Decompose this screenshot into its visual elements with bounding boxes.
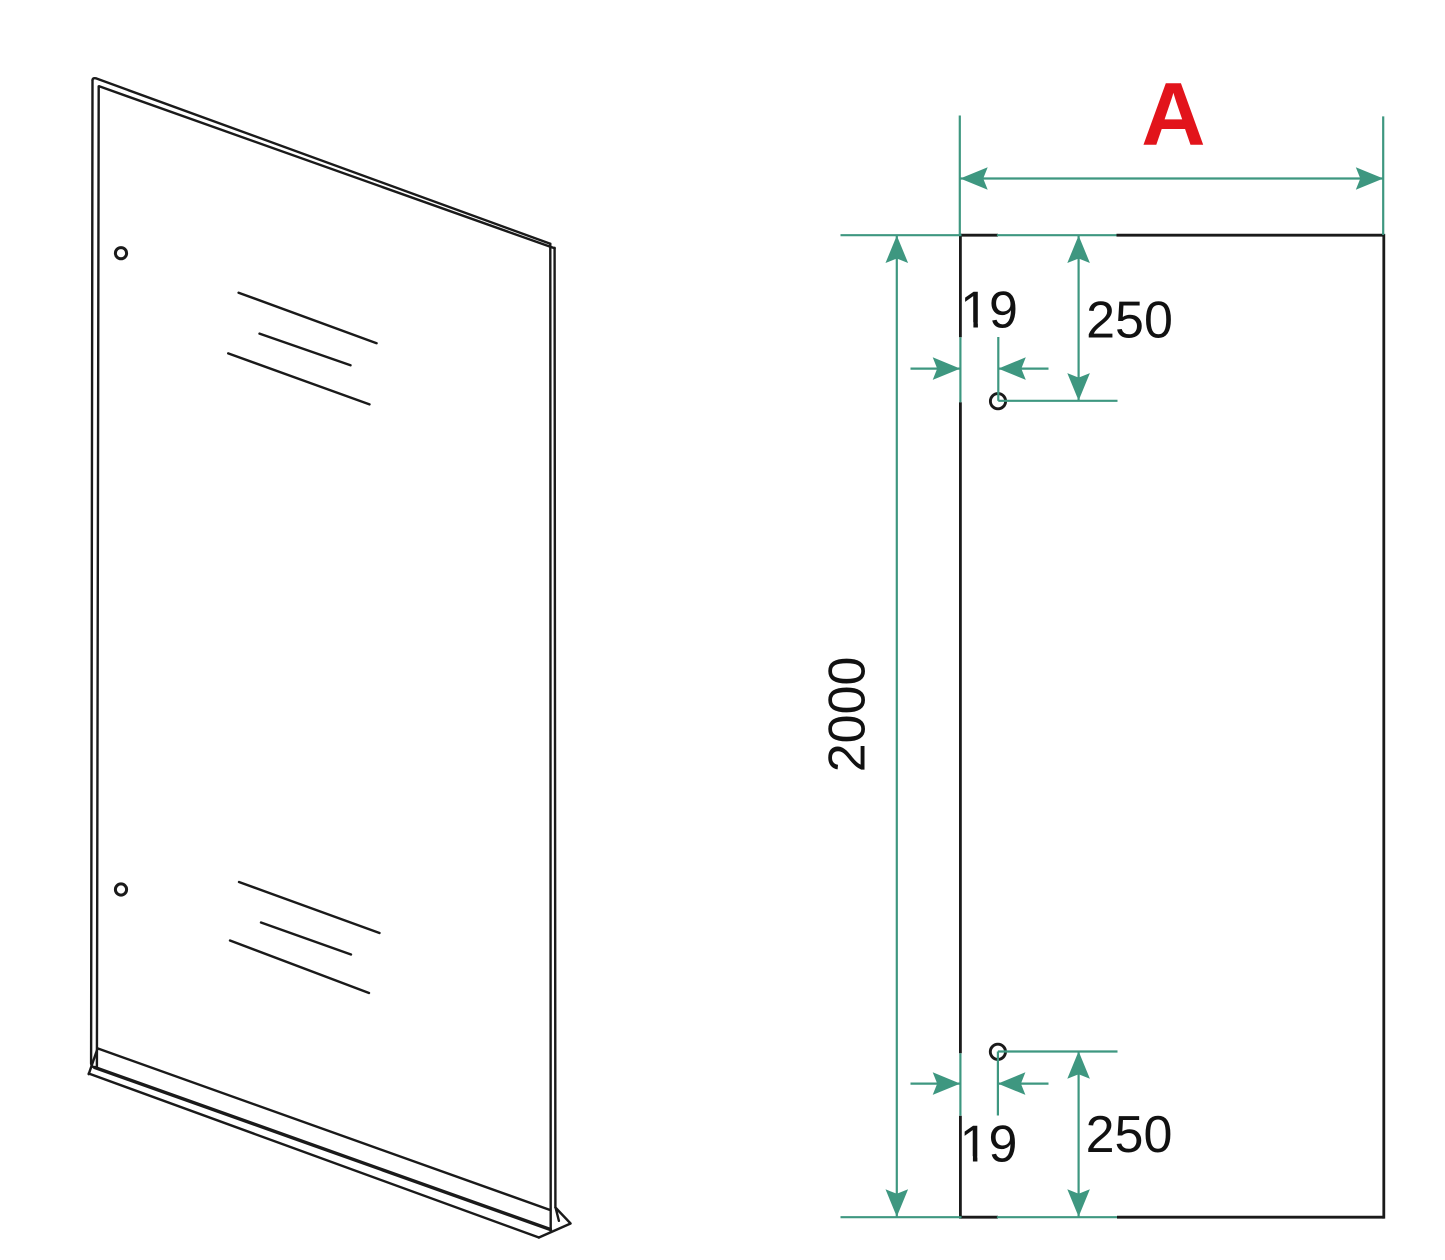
- svg-text:2000: 2000: [818, 657, 876, 773]
- svg-text:19: 19: [960, 1115, 1018, 1173]
- svg-text:250: 250: [1086, 292, 1173, 350]
- svg-text:19: 19: [960, 282, 1018, 340]
- svg-text:250: 250: [1086, 1106, 1173, 1164]
- svg-text:A: A: [1141, 63, 1205, 163]
